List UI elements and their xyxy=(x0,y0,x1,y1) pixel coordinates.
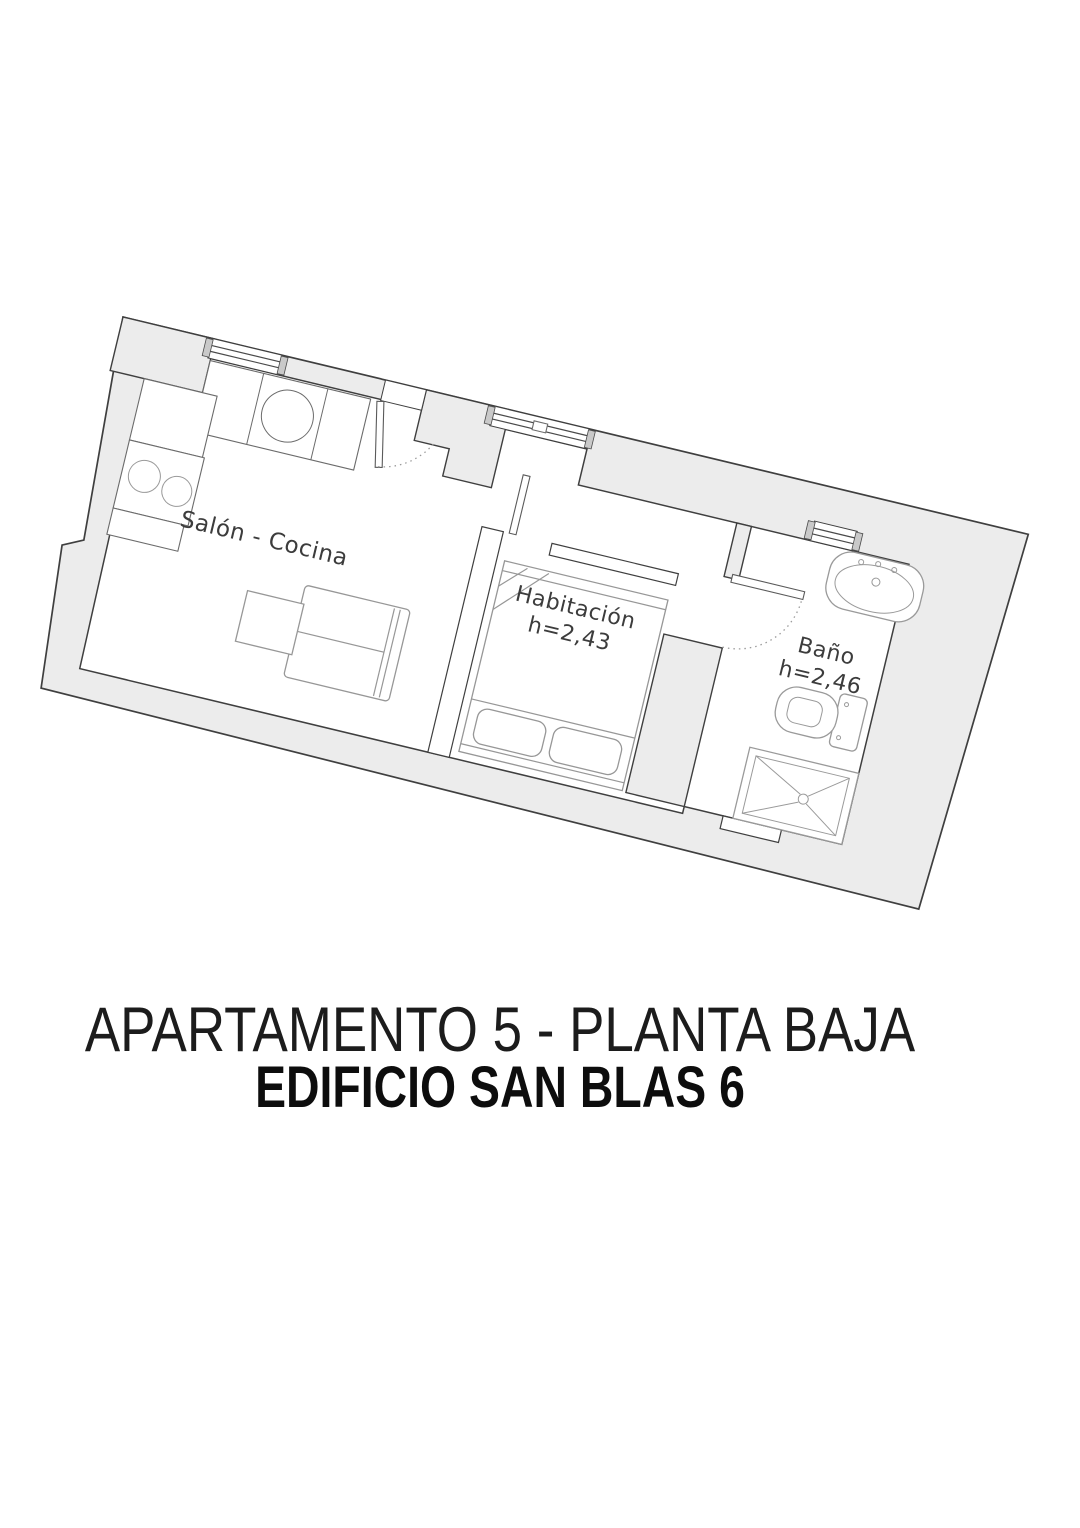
floor-plan-drawing: Salón - Cocina Habitación h=2,43 Baño h=… xyxy=(0,0,1080,1528)
floor-plan-rotated-group: Salón - Cocina Habitación h=2,43 Baño h=… xyxy=(26,316,1028,914)
page-background: Salón - Cocina Habitación h=2,43 Baño h=… xyxy=(0,0,1080,1528)
building-title: EDIFICIO SAN BLAS 6 xyxy=(100,1054,900,1121)
